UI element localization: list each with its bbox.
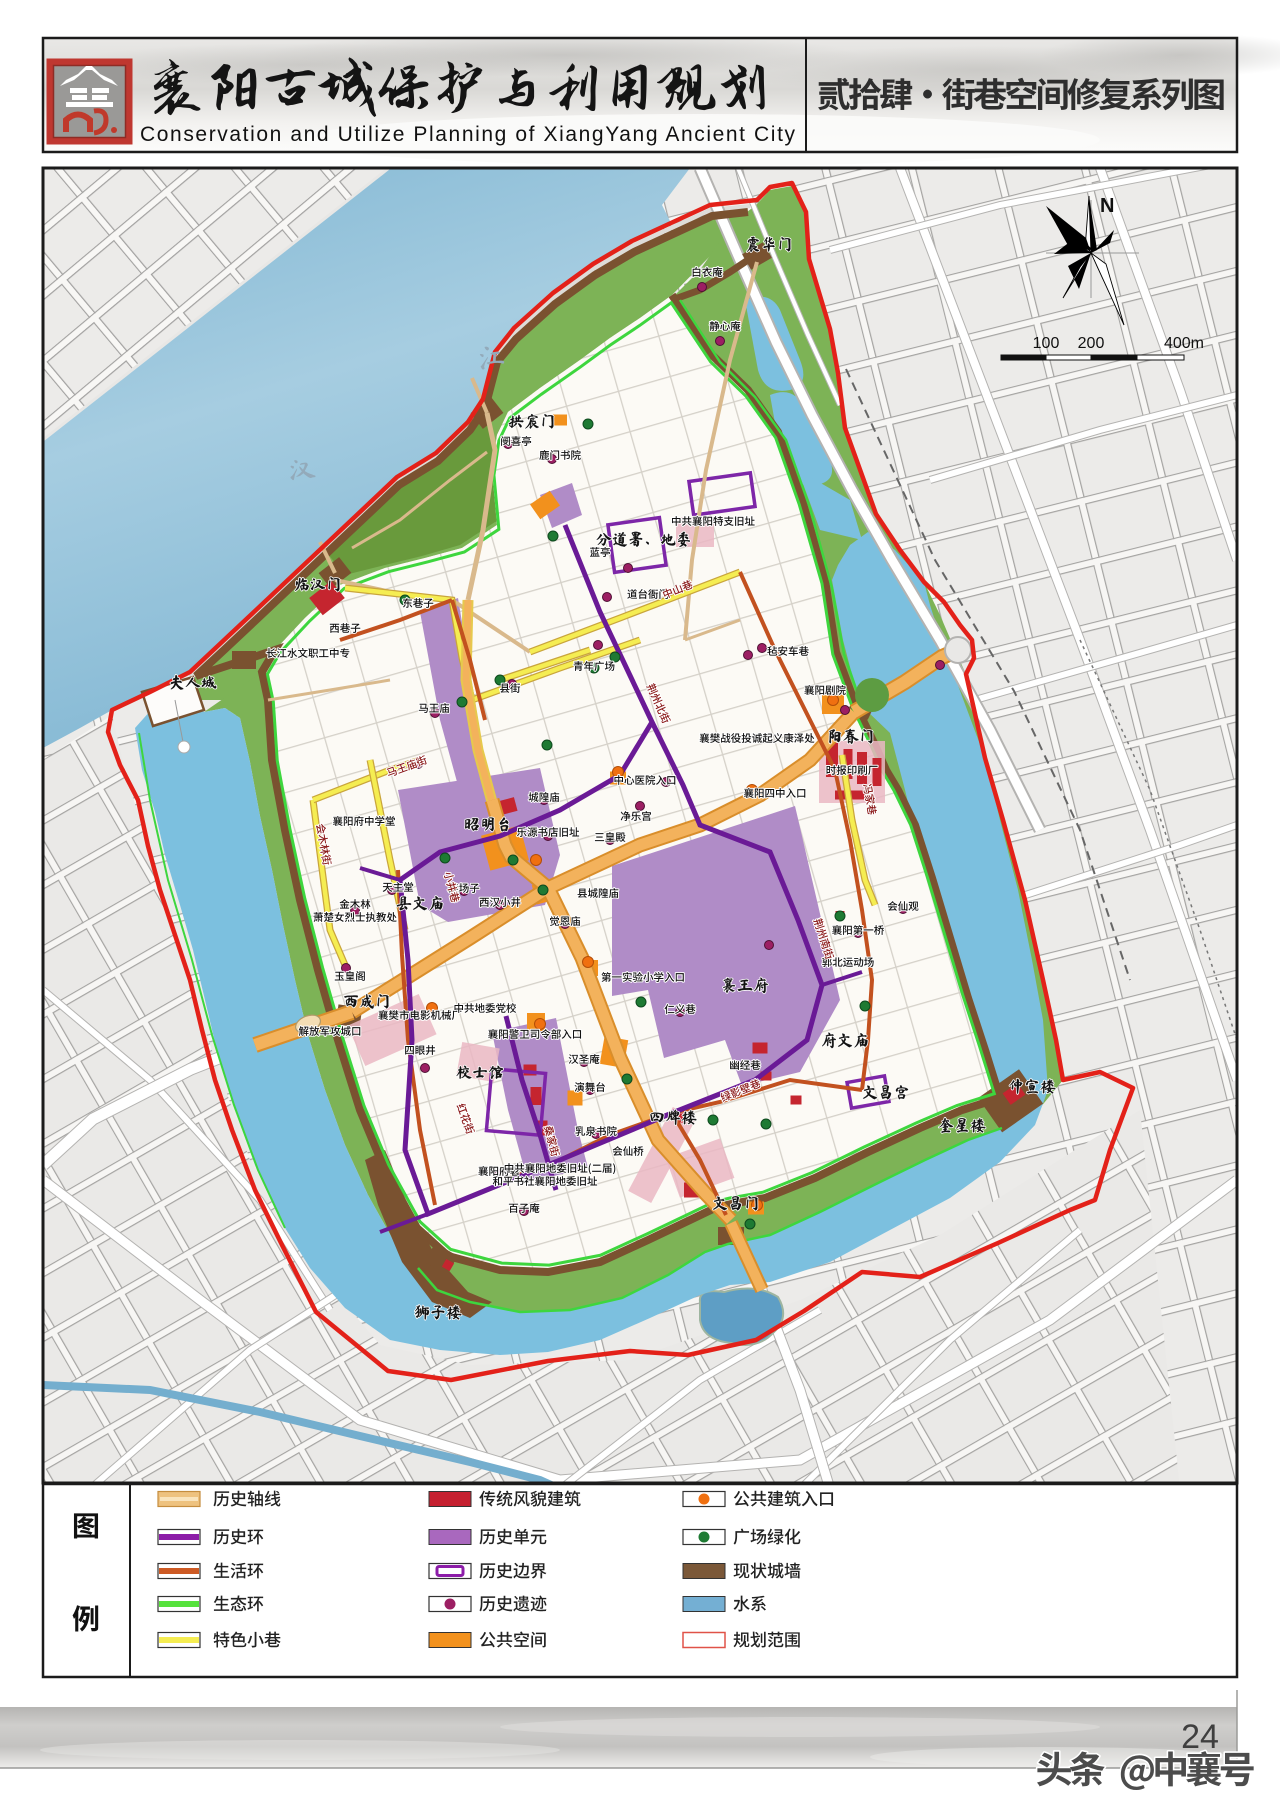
svg-text:24: 24 — [1181, 1718, 1219, 1756]
svg-text:200: 200 — [1078, 335, 1105, 352]
svg-text:N: N — [1100, 195, 1114, 217]
svg-text:Conservation and Utilize Plann: Conservation and Utilize Planning of Xia… — [140, 123, 796, 146]
svg-text:100: 100 — [1033, 335, 1060, 352]
svg-text:400m: 400m — [1164, 335, 1204, 352]
